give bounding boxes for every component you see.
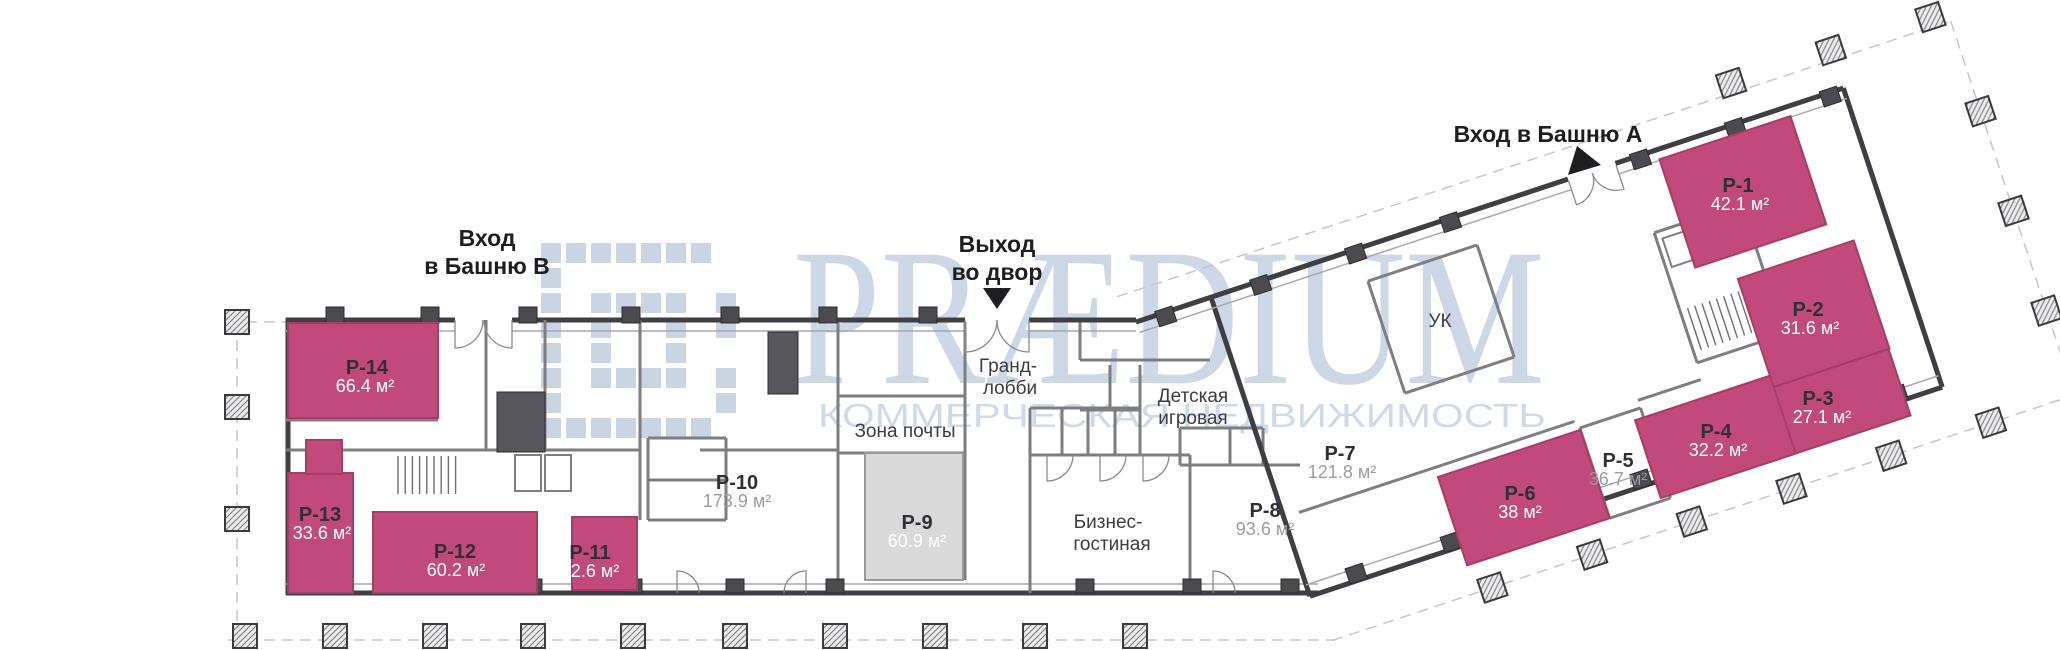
unit-area-label: 38 м² [1498, 502, 1541, 522]
logo-square [691, 418, 711, 438]
column [225, 395, 249, 419]
pilaster [1183, 579, 1201, 593]
floor-plan-page: PRÆDIUM КОММЕРЧЕСКАЯ НЕДВИЖИМОСТЬ P-142.… [0, 0, 2060, 650]
column [233, 624, 257, 648]
entrance-text: во двор [952, 259, 1043, 285]
column [225, 310, 249, 334]
unit-area-label: 31.6 м² [1781, 318, 1839, 338]
column [323, 624, 347, 648]
pilaster [1281, 579, 1299, 593]
column [923, 624, 947, 648]
room-label-kids-playroom: игровая [1158, 408, 1227, 429]
unit-area-label: 173.9 м² [703, 491, 771, 511]
logo-square [566, 243, 586, 263]
shaft-block [768, 332, 798, 394]
room-label-business-lounge: Бизнес- [1074, 512, 1143, 533]
logo-square [641, 368, 661, 388]
unit-area-label: 93.6 м² [1236, 519, 1294, 539]
unit-area-label: 66.4 м² [336, 376, 394, 396]
pilaster [1076, 579, 1094, 593]
shaft-block [497, 392, 545, 452]
room-label-management-company: УК [1428, 311, 1451, 332]
column [823, 624, 847, 648]
logo-square [641, 293, 661, 313]
logo-square [691, 243, 711, 263]
unit-area-label: 60.9 м² [888, 531, 946, 551]
logo-square [666, 343, 686, 363]
logo-square [591, 368, 611, 388]
pilaster [421, 307, 439, 323]
logo-square [666, 293, 686, 313]
logo-square [616, 243, 636, 263]
room-label-grand-lobby: Гранд- [979, 356, 1037, 377]
unit-area-label: 27.1 м² [1793, 407, 1851, 427]
entrance-text: Выход [959, 231, 1036, 257]
logo-square [591, 343, 611, 363]
pilaster [519, 307, 537, 323]
room-label-mail-zone: Зона почты [854, 421, 955, 442]
logo-square [591, 418, 611, 438]
pilaster [826, 579, 844, 593]
logo-square [716, 393, 736, 413]
pilaster [919, 307, 937, 323]
logo-square [641, 418, 661, 438]
entrance-text: Вход [459, 225, 516, 251]
room-label-business-lounge: гостиная [1073, 534, 1150, 555]
unit-area-label: 32.2 м² [1689, 440, 1747, 460]
column [1123, 624, 1147, 648]
logo-square [541, 293, 561, 313]
logo-square [716, 368, 736, 388]
entrance-text: Вход в Башню А [1454, 121, 1643, 147]
column [225, 507, 249, 531]
floor-plan: PRÆDIUM КОММЕРЧЕСКАЯ НЕДВИЖИМОСТЬ P-142.… [0, 0, 2060, 650]
logo-square [616, 368, 636, 388]
logo-square [616, 418, 636, 438]
pilaster [622, 307, 640, 323]
logo-square [591, 243, 611, 263]
logo-square [591, 293, 611, 313]
logo-square [566, 418, 586, 438]
column [723, 624, 747, 648]
logo-square [666, 243, 686, 263]
entrance-text: в Башню В [424, 253, 550, 279]
unit-area-label: 32.6 м² [561, 561, 619, 581]
column [521, 624, 545, 648]
room-label-grand-lobby: лобби [983, 378, 1037, 399]
pilaster [726, 579, 744, 593]
logo-square [666, 418, 686, 438]
column [1023, 624, 1047, 648]
column [423, 624, 447, 648]
unit-area-label: 60.2 м² [427, 560, 485, 580]
pilaster [326, 307, 344, 323]
column [621, 624, 645, 648]
unit-area-label: 121.8 м² [1308, 462, 1376, 482]
unit-area-label: 33.6 м² [293, 523, 351, 543]
pilaster [819, 307, 837, 323]
room-label-kids-playroom: Детская [1158, 386, 1228, 407]
unit-area-label: 36.7 м² [1589, 469, 1647, 489]
unit-area-label: 42.1 м² [1711, 194, 1769, 214]
logo-square [641, 243, 661, 263]
logo-square [666, 368, 686, 388]
pilaster [721, 307, 739, 323]
